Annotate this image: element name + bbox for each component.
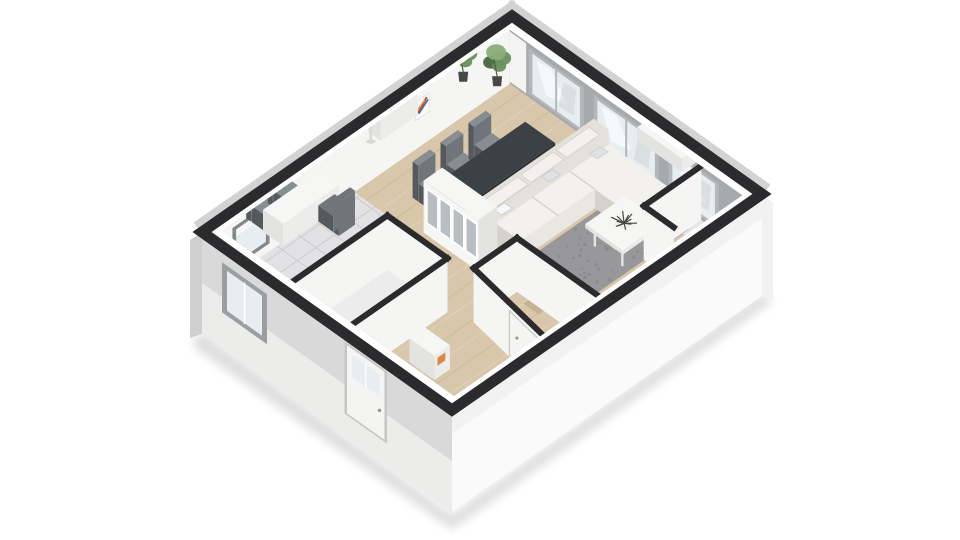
front-door-handle — [378, 409, 382, 413]
rug-texture-dot — [598, 268, 601, 271]
rug-texture-dot — [610, 270, 612, 272]
cabinet-glass-door-3 — [453, 207, 464, 249]
floorplan-canvas — [0, 0, 960, 540]
rug-texture-dot — [588, 273, 591, 276]
rug-texture-dot — [578, 254, 581, 257]
lamp-base — [366, 140, 376, 144]
rug-texture-dot — [586, 259, 589, 262]
rug-texture-dot — [579, 274, 581, 276]
plant-pot — [492, 76, 502, 86]
rug-texture-dot — [580, 249, 583, 252]
rug-texture-dot — [583, 276, 585, 278]
cabinet-glass-door-4 — [466, 217, 477, 259]
plant-foliage — [486, 44, 506, 60]
rug-texture-dot — [640, 252, 642, 254]
dining-chair-1-back-side — [413, 162, 419, 202]
rug-texture-dot — [636, 250, 639, 253]
rug-texture-dot — [579, 237, 582, 240]
rug-texture-dot — [572, 257, 575, 260]
rug-texture-dot — [566, 245, 568, 247]
cabinet-glass-door-1 — [427, 189, 438, 231]
lamp-shade-top — [364, 80, 378, 85]
rug-texture-dot — [581, 268, 583, 270]
rug-texture-dot — [583, 271, 586, 274]
corner-cap-left — [190, 232, 202, 338]
rug-texture-dot — [557, 255, 560, 258]
rug-texture-dot — [586, 232, 589, 235]
rug-texture-dot — [599, 242, 601, 244]
rug-texture-dot — [577, 243, 580, 246]
cabinet-glass-door-2 — [440, 198, 451, 240]
rug-texture-dot — [604, 245, 607, 248]
under-stair-door-handle — [515, 336, 518, 339]
rug-texture-dot — [608, 278, 612, 282]
rug-texture-dot — [574, 227, 577, 230]
rug-texture-dot — [608, 247, 611, 250]
floorplan-3d-render — [0, 0, 960, 540]
rug-texture-dot — [595, 280, 597, 282]
plant-pot — [458, 72, 468, 82]
rug-texture-dot — [605, 248, 608, 251]
corner-cap-right — [762, 194, 773, 300]
rug-texture-dot — [594, 263, 597, 266]
dining-chair-3-back-side — [468, 123, 474, 163]
rug-texture-dot — [583, 243, 586, 246]
rug-texture-dot — [632, 256, 635, 259]
